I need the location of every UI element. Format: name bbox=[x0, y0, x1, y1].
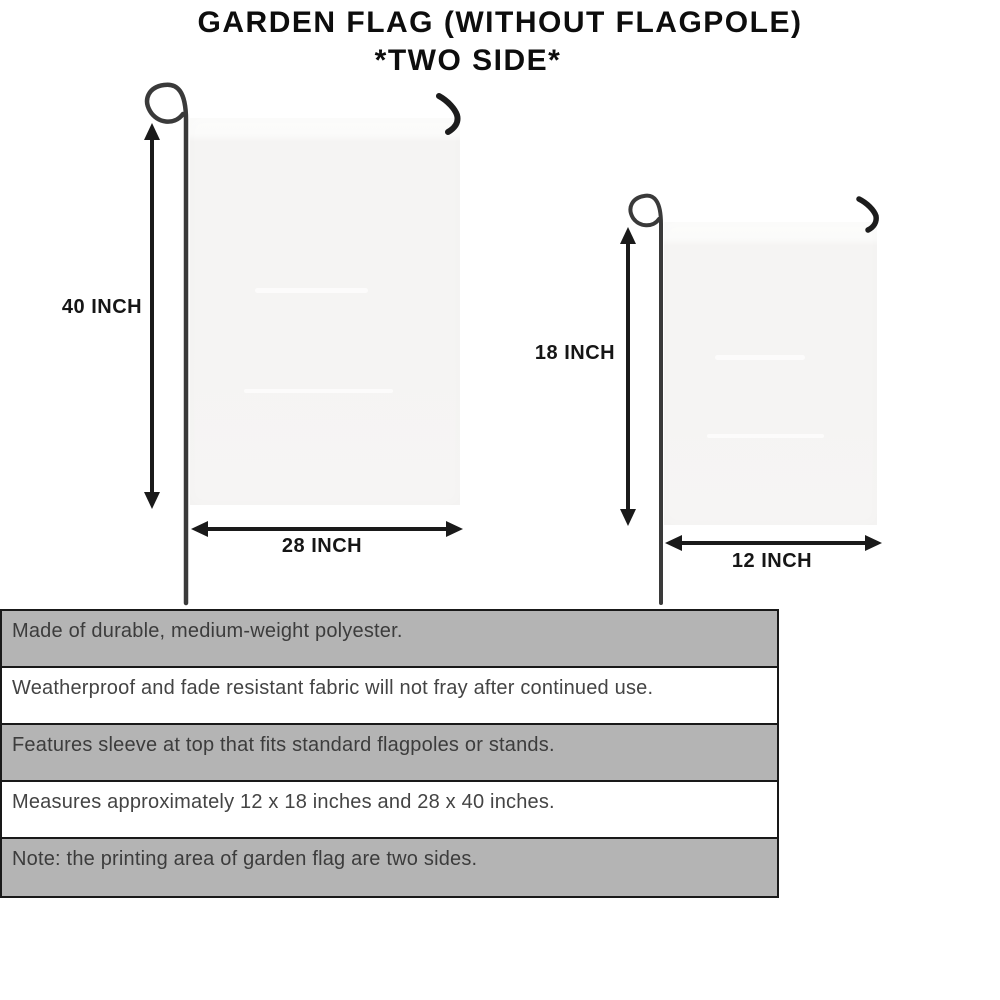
feature-row-measurements: Measures approximately 12 x 18 inches an… bbox=[2, 782, 777, 839]
large-flag-width-label: 28 INCH bbox=[260, 535, 384, 558]
small-flag-height-label: 18 INCH bbox=[513, 342, 637, 365]
garden-flag-size-infographic: GARDEN FLAG (WITHOUT FLAGPOLE) *TWO SIDE… bbox=[0, 0, 1000, 1000]
feature-row-note: Note: the printing area of garden flag a… bbox=[2, 839, 777, 896]
large-flag-height-label: 40 INCH bbox=[40, 296, 164, 319]
small-flag-hook-icon bbox=[859, 199, 876, 230]
small-flag-width-label: 12 INCH bbox=[710, 550, 834, 573]
small-flag-width-arrow bbox=[665, 535, 882, 551]
small-flagpole-icon bbox=[630, 196, 661, 603]
feature-table: Made of durable, medium-weight polyester… bbox=[0, 609, 779, 898]
feature-row-weatherproof: Weatherproof and fade resistant fabric w… bbox=[2, 668, 777, 725]
large-flag-hook-icon bbox=[439, 96, 458, 132]
small-flag-height-arrow bbox=[620, 227, 636, 526]
feature-row-sleeve: Features sleeve at top that fits standar… bbox=[2, 725, 777, 782]
feature-row-material: Made of durable, medium-weight polyester… bbox=[2, 611, 777, 668]
